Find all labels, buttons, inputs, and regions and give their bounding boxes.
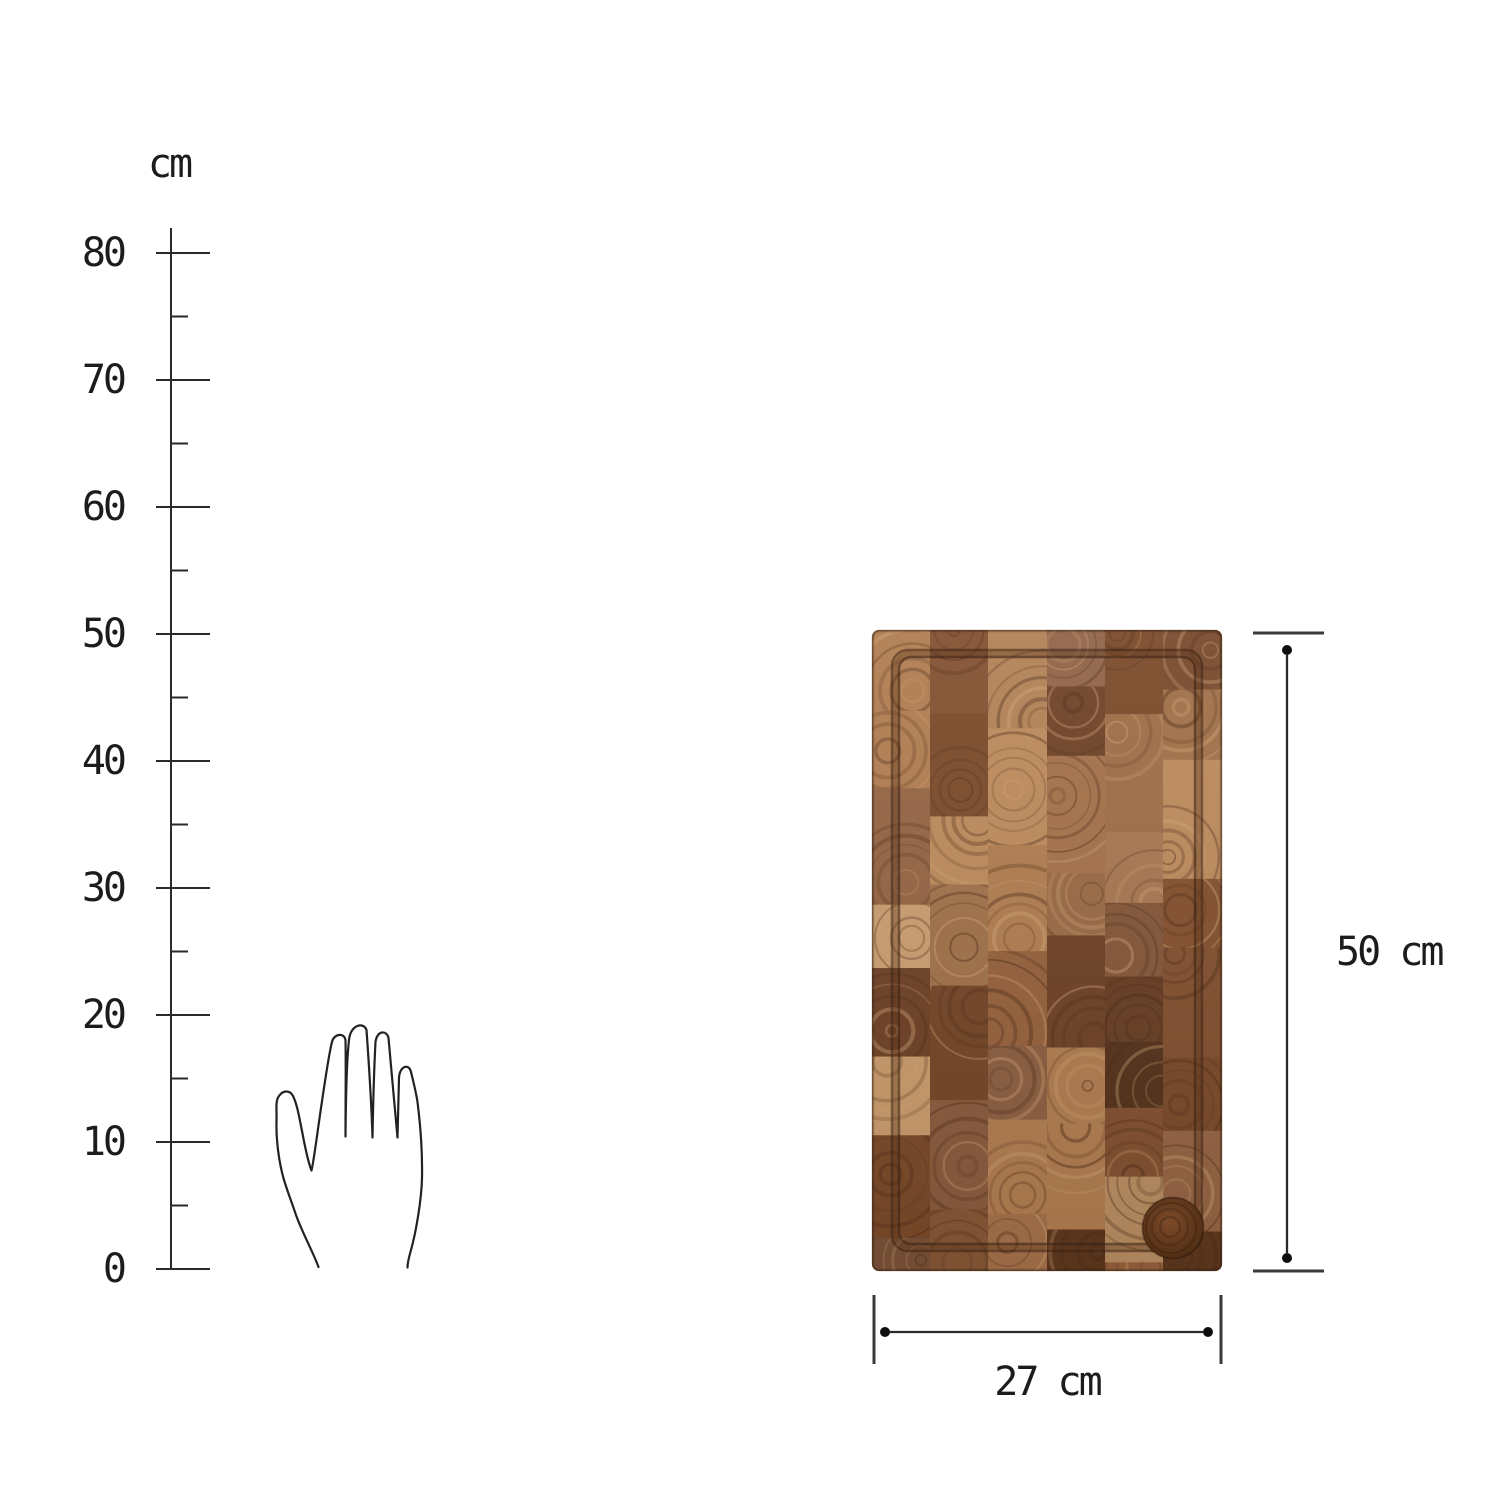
ruler-tick-label: 0 bbox=[52, 1243, 124, 1295]
diagram-canvas bbox=[0, 0, 1500, 1500]
height-dimension-line bbox=[1253, 633, 1324, 1271]
hand-scale-icon bbox=[276, 1025, 422, 1267]
board-juice-well bbox=[1143, 1198, 1204, 1259]
dimension-dot bbox=[1282, 645, 1292, 655]
ruler-tick-label: 20 bbox=[52, 989, 124, 1041]
ruler-unit-label: cm bbox=[109, 138, 229, 190]
dimension-dot bbox=[880, 1327, 890, 1337]
width-dimension-line bbox=[874, 1295, 1221, 1364]
ruler-tick-label: 30 bbox=[52, 862, 124, 914]
ruler-tick-label: 70 bbox=[52, 354, 124, 406]
height-dimension-label: 50 cm bbox=[1336, 926, 1441, 978]
cutting-board-image bbox=[824, 572, 1284, 1345]
ruler-tick-label: 50 bbox=[52, 608, 124, 660]
ruler-tick-label: 10 bbox=[52, 1116, 124, 1168]
product-size-guide-diagram: cm 80706050403020100 50 cm 27 cm bbox=[0, 0, 1500, 1500]
width-dimension-label: 27 cm bbox=[947, 1356, 1147, 1408]
dimension-dot bbox=[1282, 1253, 1292, 1263]
ruler-scale bbox=[156, 228, 210, 1269]
ruler-tick-label: 40 bbox=[52, 735, 124, 787]
ruler-tick-label: 80 bbox=[52, 227, 124, 279]
dimension-dot bbox=[1203, 1327, 1213, 1337]
ruler-tick-label: 60 bbox=[52, 481, 124, 533]
